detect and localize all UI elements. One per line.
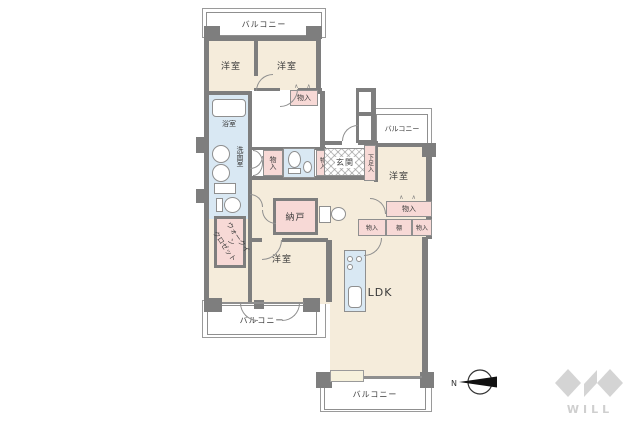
closet-label: 物入 — [297, 93, 311, 103]
room-washroom: 洗面室 — [235, 146, 247, 192]
room-western-right: 洋室 — [372, 150, 426, 200]
closet-hall-left: 物入 — [263, 150, 283, 176]
toilet-tank — [288, 168, 301, 174]
wall — [204, 36, 321, 41]
wall-corner-block — [204, 298, 222, 312]
pipe-shaft-inset — [359, 92, 371, 112]
toilet-bowl — [288, 151, 301, 168]
kitchen-sink — [348, 286, 362, 308]
window-sill — [330, 370, 364, 382]
balcony-right: バルコニー — [376, 114, 428, 144]
balcony-label: バルコニー — [353, 389, 398, 400]
room-label: 洋室 — [389, 169, 409, 182]
storage-room-nando: 納戸 — [273, 198, 318, 235]
window-line — [362, 376, 422, 378]
washing-machine — [212, 145, 230, 163]
balcony-top: バルコニー — [206, 12, 322, 36]
laundry-pan — [214, 183, 236, 194]
washbasin — [212, 164, 230, 182]
wall — [422, 237, 428, 374]
closet-row-right: 物入 — [412, 219, 432, 236]
wall — [282, 238, 328, 242]
stove-burner — [356, 256, 362, 262]
wall-corner-block — [306, 26, 322, 39]
toilet-bowl — [224, 197, 241, 213]
wall-corner-block — [204, 26, 220, 39]
shelf: 棚 — [386, 219, 412, 236]
washbasin — [331, 207, 346, 221]
wall-corner-block — [303, 298, 320, 312]
toilet-tank — [216, 198, 223, 212]
entrance-genkan: 玄関 — [324, 148, 366, 176]
room-label: LDK — [368, 286, 393, 299]
closet-row-left: 物入 — [358, 219, 386, 236]
balcony-bottom-left: バルコニー — [207, 305, 317, 335]
balcony-bottom: バルコニー — [324, 378, 426, 410]
room-label: 洋室 — [277, 59, 297, 72]
closet-label: 物入 — [268, 156, 278, 170]
room-western-bottom: 洋室 — [252, 248, 312, 268]
wall — [250, 238, 262, 242]
shoe-cabinet: 下足入 — [364, 145, 376, 181]
balcony-label: バルコニー — [242, 19, 287, 30]
shoe-cabinet-label: 下足入 — [366, 154, 375, 172]
door-arc-entrance — [342, 125, 358, 141]
room-label: 玄関 — [335, 157, 355, 168]
pipe-shaft-inset — [359, 116, 371, 140]
floor-plan: バルコニー バルコニー バルコニー バルコニー — [0, 0, 640, 427]
room-label: 洗面室 — [235, 146, 245, 167]
wall-corner-block — [420, 372, 434, 388]
room-western-top-left: 洋室 — [208, 42, 254, 88]
walk-in-closet-label: ウォークイン クロゼット — [210, 220, 251, 265]
wall — [316, 36, 321, 94]
will-logo-text: WILL — [567, 403, 613, 416]
wall — [204, 91, 252, 95]
room-label: 納戸 — [285, 210, 305, 223]
room-label: 洋室 — [221, 59, 241, 72]
stove-burner — [347, 256, 353, 262]
room-bathroom: 浴室 — [208, 117, 250, 131]
wall — [324, 141, 342, 145]
folding-door-mark: ∧ ∧ — [394, 194, 424, 200]
compass-icon: N — [450, 362, 510, 402]
closet-label: 物入 — [402, 204, 416, 214]
will-logo: WILL — [548, 362, 632, 418]
vanity-cabinet — [319, 206, 331, 223]
compass-north-label: N — [451, 379, 457, 388]
wall-pilaster — [196, 137, 206, 153]
room-label: 浴室 — [222, 119, 236, 129]
bathtub — [212, 99, 246, 117]
closet-wide: 物入 — [386, 201, 432, 217]
wall-pilaster — [196, 189, 206, 203]
wall — [326, 240, 332, 302]
closet-label: 物入 — [416, 223, 428, 232]
closet-label: 物入 — [366, 223, 378, 232]
stove-burner — [347, 264, 353, 270]
shelf-label: 棚 — [396, 223, 402, 232]
balcony-label: バルコニー — [385, 124, 420, 134]
walk-in-closet-label-box: ウォークイン クロゼット — [212, 224, 250, 260]
corner-basin — [303, 161, 312, 173]
